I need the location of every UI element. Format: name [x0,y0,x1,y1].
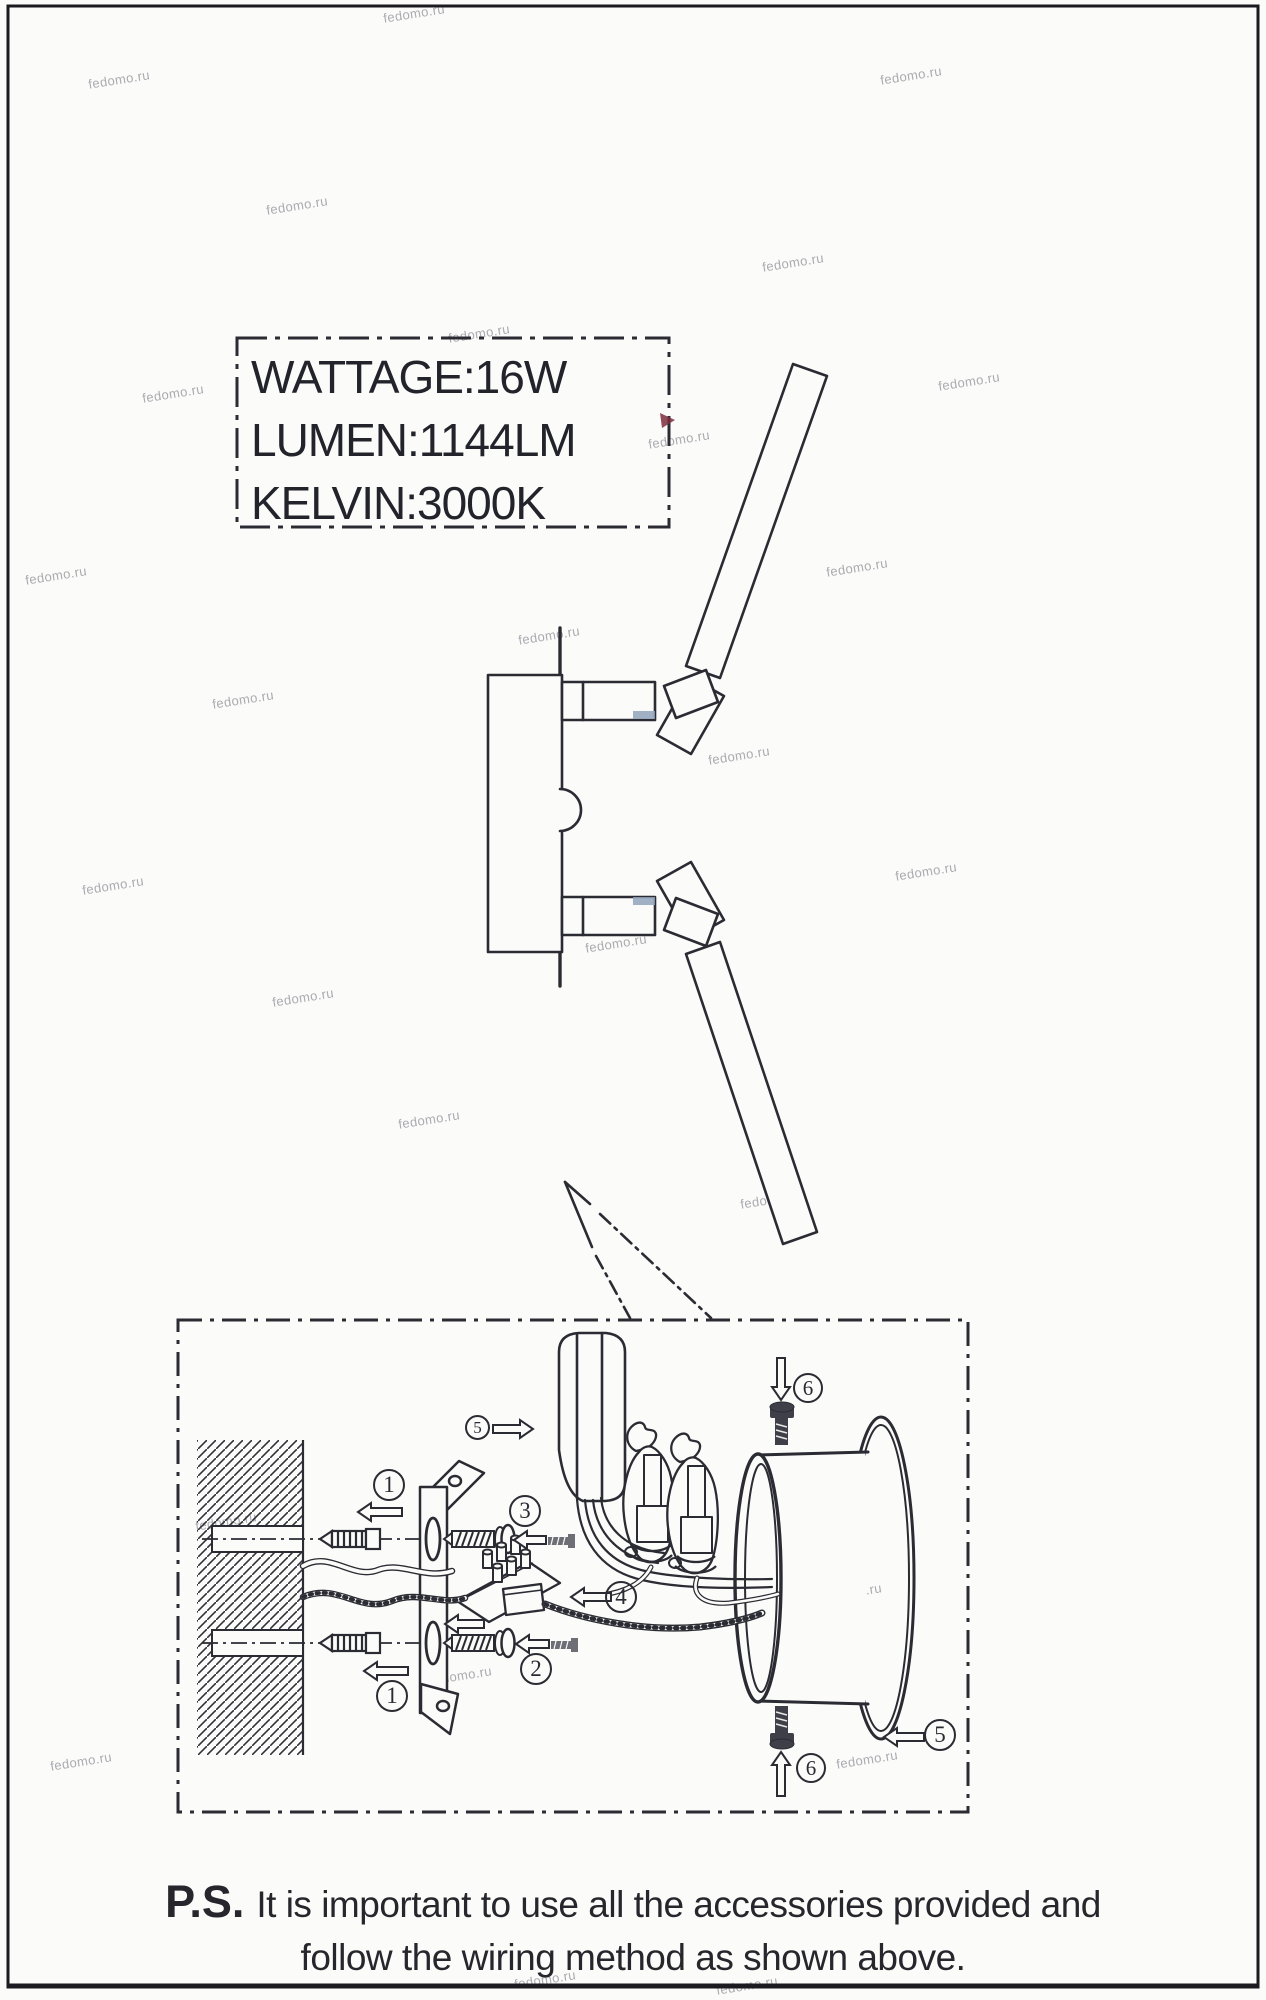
manual-page: fedomo.ru fedomo.ru fedomo.ru fedomo.ru … [0,0,1266,2000]
diagram-artwork [0,0,1266,2000]
callout-6-top: 6 [793,1373,823,1403]
lamp-tube-top [686,364,827,678]
switch-bump [560,789,581,831]
footnote-prefix: P.S. [165,1876,244,1927]
canopy-screw-top [770,1402,794,1445]
spec-wattage: WATTAGE:16W [251,346,661,409]
arrow-step1-bottom [364,1662,408,1680]
callout-3: 3 [509,1495,541,1527]
pointer-arrow [565,1182,711,1318]
lamp-tube-bottom [686,942,817,1244]
lamp-backplate [488,675,562,952]
spec-lumen: LUMEN:1144LM [251,409,661,472]
footnote-line1-text: It is important to use all the accessori… [256,1884,1101,1925]
spec-box: WATTAGE:16W LUMEN:1144LM KELVIN:3000K [251,346,661,535]
arrow-step2 [516,1635,549,1653]
callout-5-top: 5 [465,1415,490,1440]
bracket-slot-bottom [426,1622,440,1664]
page-frame [8,6,1258,1987]
callout-5-right: 5 [924,1719,956,1751]
bracket-slot-top [426,1518,440,1560]
callout-4: 4 [605,1581,637,1613]
canopy-cylinder [735,1417,914,1739]
footnote-line1: P.S.It is important to use all the acces… [40,1876,1226,1928]
arrow-step6-up [772,1752,790,1796]
lamp-holders [623,1423,718,1574]
arrow-step1-top [358,1503,402,1521]
arrow-step6-down [772,1358,790,1400]
driver-box [559,1333,625,1501]
arrow-bracket-slot [445,1615,484,1633]
callout-1-bottom: 1 [376,1680,408,1712]
spec-kelvin: KELVIN:3000K [251,472,661,535]
callout-1-top: 1 [373,1469,405,1501]
footnote-line2: follow the wiring method as shown above. [40,1937,1226,1979]
callout-2: 2 [520,1653,552,1685]
footnote: P.S.It is important to use all the acces… [40,1876,1226,1979]
mini-screws [548,1534,578,1652]
canopy-screw-bottom [770,1706,794,1749]
callout-6-bottom: 6 [796,1753,826,1783]
arrow-step5-top [493,1420,533,1438]
